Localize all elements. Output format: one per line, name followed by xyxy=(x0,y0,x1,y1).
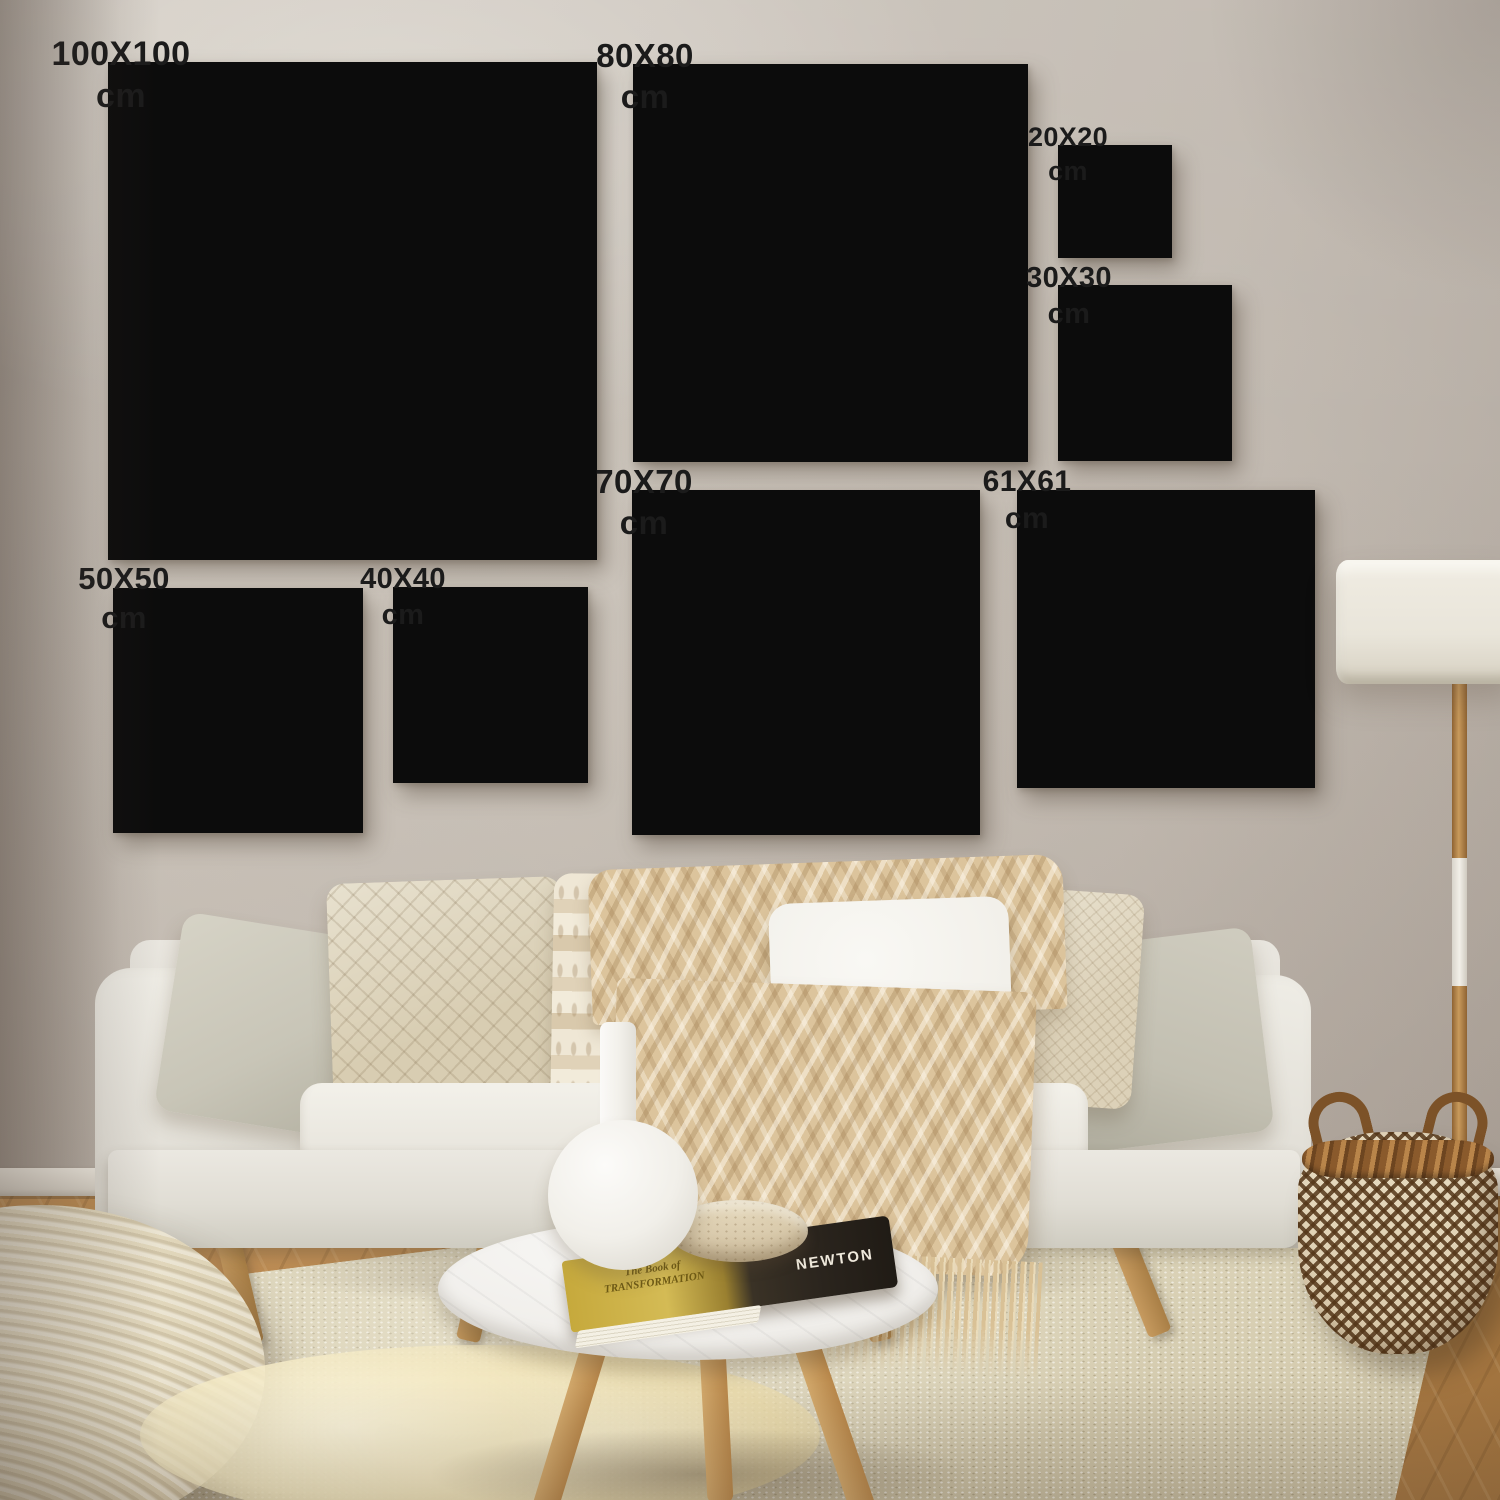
size-frame-40x40: 40X40 cm xyxy=(393,587,588,783)
size-frame-80x80: 80X80 cm xyxy=(633,64,1028,462)
size-frame-20x20: 20X20 cm xyxy=(1058,145,1172,258)
white-vase xyxy=(548,1022,698,1272)
size-label-100x100: 100X100 cm xyxy=(52,33,191,118)
size-frame-50x50: 50X50 cm xyxy=(113,588,363,833)
size-label-61x61: 61X61 cm xyxy=(983,463,1072,538)
size-label-30x30: 30X30 cm xyxy=(1026,260,1112,333)
living-room-frame-size-guide: 100X100 cm 80X80 cm 20X20 cm 30X30 cm 50… xyxy=(0,0,1500,1500)
size-frame-70x70: 70X70 cm xyxy=(632,490,980,835)
table-shadow xyxy=(430,1428,970,1500)
vase-body xyxy=(548,1120,698,1270)
size-frame-100x100: 100X100 cm xyxy=(108,62,597,560)
size-label-50x50: 50X50 cm xyxy=(78,560,170,638)
size-frame-30x30: 30X30 cm xyxy=(1058,285,1232,461)
floor-lamp-pole-band xyxy=(1452,858,1467,986)
basket-rim xyxy=(1302,1140,1494,1178)
size-label-80x80: 80X80 cm xyxy=(596,35,693,118)
size-label-40x40: 40X40 cm xyxy=(360,561,446,634)
size-label-20x20: 20X20 cm xyxy=(1028,121,1108,189)
woven-basket xyxy=(1298,1092,1498,1354)
size-label-70x70: 70X70 cm xyxy=(595,461,692,544)
size-frame-61x61: 61X61 cm xyxy=(1017,490,1315,788)
floor-lamp-shade xyxy=(1336,560,1500,684)
